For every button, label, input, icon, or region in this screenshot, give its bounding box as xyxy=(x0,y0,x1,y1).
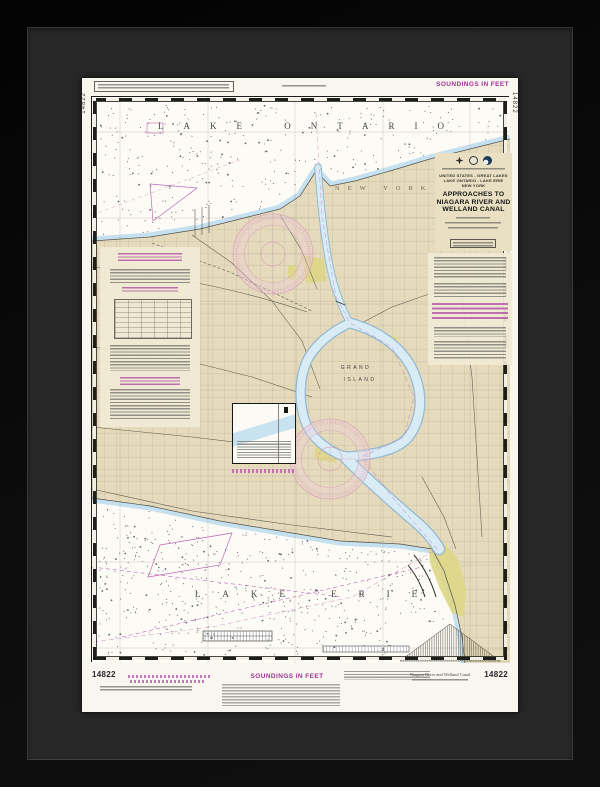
chart-number-bottom-left: 14822 xyxy=(92,670,116,679)
magenta-note-line xyxy=(128,675,210,678)
note-paragraph xyxy=(434,283,506,297)
footer-left-note xyxy=(100,686,192,692)
chart-print: SOUNDINGS IN FEET 14822 14822 xyxy=(82,78,518,712)
note-paragraph xyxy=(434,327,506,337)
note-text-lines xyxy=(98,84,229,90)
levels-table xyxy=(114,299,192,339)
soundings-note-top: SOUNDINGS IN FEET xyxy=(436,81,509,88)
notes-panel-right xyxy=(428,253,512,365)
label-island: ISLAND xyxy=(330,377,390,383)
note-heading xyxy=(120,377,180,385)
datum-note-lines xyxy=(453,242,493,247)
edge-chart-number-left: 14822 xyxy=(81,92,87,114)
commerce-seal-icon xyxy=(456,157,464,165)
agency-logos xyxy=(435,155,512,166)
label-new-york: NEW YORK xyxy=(335,185,439,192)
datum-note-box xyxy=(450,239,496,248)
projection-line xyxy=(456,217,490,219)
note-paragraph xyxy=(434,341,506,359)
top-left-note-box xyxy=(94,81,234,92)
chart-title-block: UNITED STATES - GREAT LAKES LAKE ONTARIO… xyxy=(435,153,512,251)
inset-notes xyxy=(237,441,291,458)
graduation-left xyxy=(93,98,96,660)
note-heading xyxy=(118,253,182,263)
authority-line xyxy=(442,168,505,170)
graduation-bottom xyxy=(93,657,507,660)
harbor-inset-map xyxy=(232,403,296,464)
note-heading xyxy=(122,287,178,293)
notes-panel-left xyxy=(100,247,200,427)
label-lake-ontario: LAKE ONTARIO xyxy=(128,121,494,131)
nos-seal-icon xyxy=(469,156,478,165)
inset-pier-mark xyxy=(284,407,288,413)
framed-chart-artwork: SOUNDINGS IN FEET 14822 14822 xyxy=(0,0,600,787)
footer-subtitle-note xyxy=(412,679,468,682)
datum-line xyxy=(448,227,498,229)
note-paragraph xyxy=(110,389,190,419)
footer-paragraph xyxy=(222,684,340,706)
top-center-note xyxy=(282,85,326,88)
noaa-emblem-icon xyxy=(483,156,492,165)
chart-title-line1: APPROACHES TO xyxy=(435,191,512,199)
footer-subtitle: Niagara River and Welland Canal xyxy=(394,672,486,677)
chart-neatline-area: LAKE ONTARIO LAKE ERIE NEW YORK GRAND IS… xyxy=(91,96,509,662)
chart-title-line2: NIAGARA RIVER AND xyxy=(435,199,512,207)
note-paragraph xyxy=(434,257,506,279)
caution-note xyxy=(432,303,508,321)
label-lake-erie: LAKE ERIE xyxy=(162,589,472,599)
scale-line xyxy=(445,222,501,224)
inset-scale-noise xyxy=(232,469,296,473)
label-grand: GRAND xyxy=(326,365,386,371)
chart-number-bottom-right: 14822 xyxy=(480,670,508,679)
note-paragraph xyxy=(110,269,190,283)
chart-title-line3: WELLAND CANAL xyxy=(435,206,512,214)
title-state: NEW YORK xyxy=(435,183,512,188)
edge-chart-number-right: 14822 xyxy=(511,92,517,114)
graduation-top xyxy=(93,98,507,101)
magenta-note-line xyxy=(130,680,206,683)
soundings-note-bottom: SOUNDINGS IN FEET xyxy=(232,673,342,680)
note-paragraph xyxy=(110,345,190,371)
